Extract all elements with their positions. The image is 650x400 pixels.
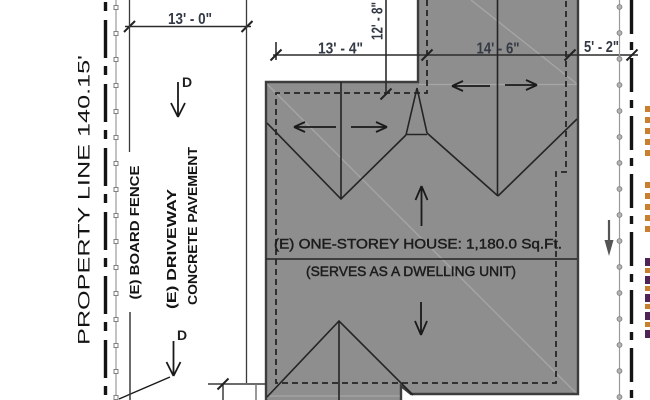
svg-text:5' - 2": 5' - 2" <box>584 39 619 56</box>
svg-text:13' - 0": 13' - 0" <box>168 11 212 28</box>
svg-text:(E) ONE-STOREY HOUSE: 1,180.0: (E) ONE-STOREY HOUSE: 1,180.0 Sq.Ft. <box>274 237 562 252</box>
svg-text:(E) BOARD FENCE: (E) BOARD FENCE <box>127 165 142 299</box>
svg-text:PROPERTY LINE 140.15': PROPERTY LINE 140.15' <box>75 55 94 345</box>
svg-text:13' - 4": 13' - 4" <box>318 41 363 58</box>
svg-text:(E) DRIVEWAY: (E) DRIVEWAY <box>164 189 179 309</box>
svg-text:CONCRETE PAVEMENT: CONCRETE PAVEMENT <box>185 147 200 305</box>
svg-text:12' - 8": 12' - 8" <box>370 2 387 40</box>
svg-text:14' - 6": 14' - 6" <box>477 41 520 58</box>
svg-text:D: D <box>182 74 192 90</box>
svg-text:D: D <box>177 327 187 343</box>
svg-text:(SERVES AS A DWELLING UNIT): (SERVES AS A DWELLING UNIT) <box>306 264 516 279</box>
